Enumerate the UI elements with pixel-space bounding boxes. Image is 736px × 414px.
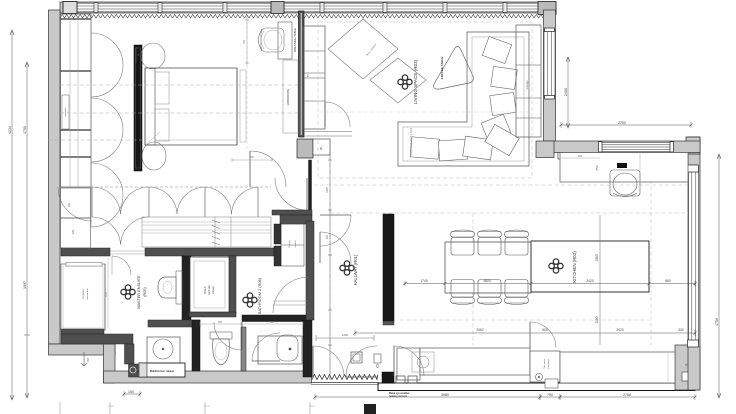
svg-text:Walk-in: Walk-in [204,285,207,294]
svg-text:650: 650 [595,165,599,170]
svg-text:heating incision: heating incision [389,395,408,398]
svg-text:2700: 2700 [618,121,626,125]
svg-text:2400: 2400 [564,88,568,96]
svg-text:LIVING SPACE (R03): LIVING SPACE (R03) [413,59,418,104]
svg-text:950: 950 [218,321,223,324]
svg-text:2052: 2052 [476,328,484,332]
svg-text:1500x800: 1500x800 [83,288,85,298]
svg-text:150: 150 [128,390,134,394]
svg-text:TV: TV [306,74,310,78]
svg-text:WARDROBE: WARDROBE [286,89,290,106]
svg-text:300: 300 [678,328,684,332]
svg-text:Multifunction cabinet: Multifunction cabinet [150,370,174,373]
svg-text:(R05): (R05) [143,287,147,297]
svg-text:plumbing: plumbing [548,359,550,369]
svg-text:4750: 4750 [715,318,719,326]
svg-text:900: 900 [68,202,71,207]
svg-text:shower tray: shower tray [86,287,89,299]
svg-text:150: 150 [86,357,90,362]
svg-text:2420: 2420 [616,328,624,332]
svg-text:DRESSING TABLE: DRESSING TABLE [293,28,297,52]
svg-text:SOFA CLM 1x5-6 x 10-6: SOFA CLM 1x5-6 x 10-6 [409,127,413,156]
svg-text:S: S [320,146,323,151]
svg-text:700: 700 [250,156,255,159]
svg-text:860: 860 [665,279,671,283]
svg-text:4234: 4234 [8,126,12,134]
svg-text:3980: 3980 [441,393,449,397]
svg-text:1745: 1745 [420,279,428,283]
svg-text:COFFEE TABLE: COFFEE TABLE [440,57,444,80]
svg-text:BATHROOM 2 (R06): BATHROOM 2 (R06) [257,277,262,314]
svg-text:600: 600 [72,229,75,234]
svg-text:750: 750 [243,39,246,44]
svg-text:600: 600 [542,328,548,332]
svg-text:900: 900 [270,321,275,324]
svg-text:wardrobe: wardrobe [64,107,67,117]
svg-text:KITCHEN (R02): KITCHEN (R02) [572,251,577,283]
svg-text:1500: 1500 [105,292,108,298]
svg-text:1997: 1997 [23,281,27,289]
svg-text:790: 790 [547,393,553,397]
svg-text:Storage: Storage [525,80,529,90]
svg-text:1080: 1080 [595,254,599,262]
svg-text:1200: 1200 [342,333,348,337]
svg-text:900: 900 [325,234,329,239]
svg-text:cabinet: cabinet [294,240,297,247]
svg-text:4700: 4700 [23,126,27,134]
svg-text:2420: 2420 [586,279,594,283]
svg-text:1150: 1150 [595,316,599,323]
svg-text:wardrobe: wardrobe [208,284,211,295]
svg-text:MASTER ENSUITE: MASTER ENSUITE [137,275,141,309]
svg-text:Storage: Storage [288,239,291,247]
svg-text:The waste: The waste [543,358,546,369]
svg-text:1105: 1105 [325,187,329,193]
svg-text:600: 600 [578,155,583,158]
svg-text:HALLWAY (R01): HALLWAY (R01) [353,254,358,285]
svg-text:2768: 2768 [623,393,631,397]
svg-text:4800: 4800 [483,279,491,283]
svg-text:storage: storage [212,285,215,294]
